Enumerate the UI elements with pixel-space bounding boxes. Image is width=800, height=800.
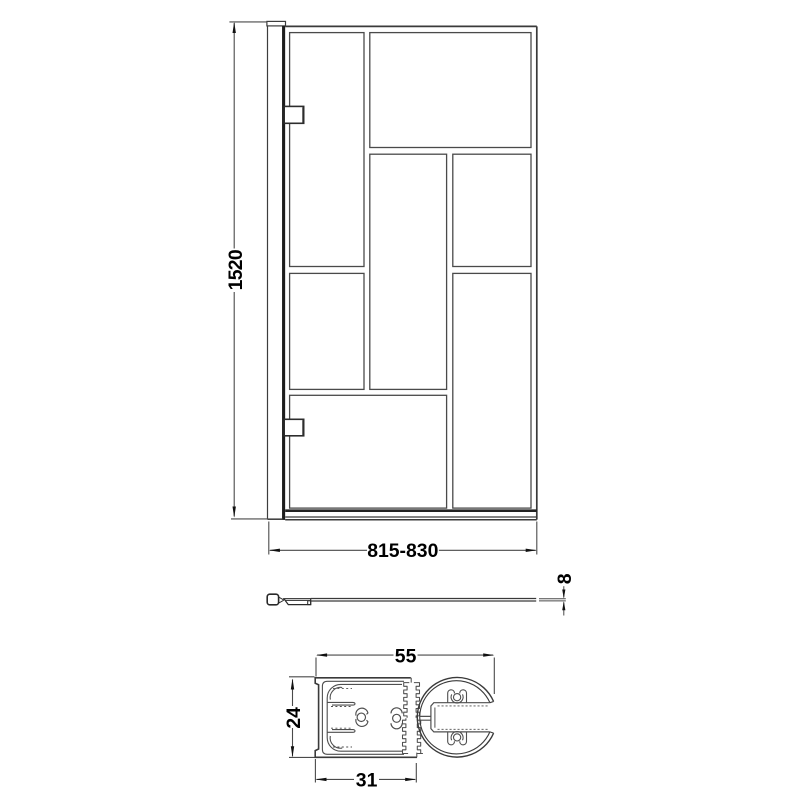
- svg-text:1520: 1520: [225, 250, 247, 290]
- svg-text:8: 8: [554, 573, 576, 584]
- svg-text:55: 55: [395, 645, 417, 667]
- svg-text:24: 24: [283, 707, 305, 729]
- svg-text:31: 31: [356, 770, 378, 792]
- svg-text:815-830: 815-830: [367, 540, 438, 562]
